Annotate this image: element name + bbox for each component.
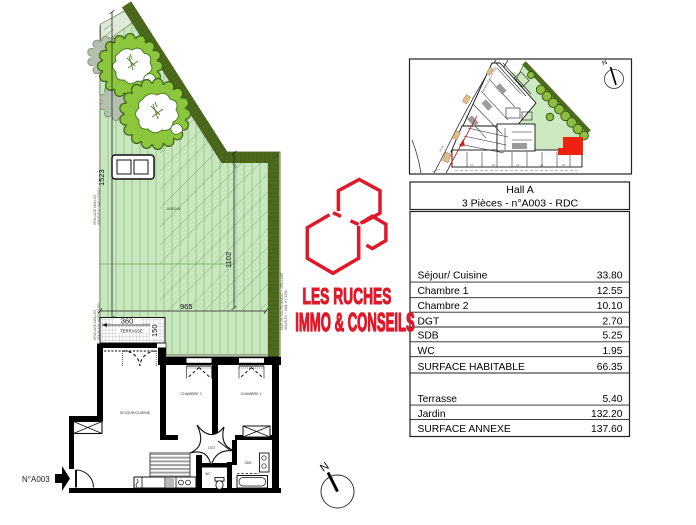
svg-text:WC: WC: [418, 346, 436, 357]
svg-text:Hall A: Hall A: [506, 184, 533, 196]
svg-text:5.40: 5.40: [602, 394, 622, 405]
svg-text:3 Pièces - n°A003 - RDC: 3 Pièces - n°A003 - RDC: [462, 198, 579, 210]
svg-text:A2: A2: [492, 163, 496, 167]
svg-text:Séjour/ Cuisine: Séjour/ Cuisine: [418, 270, 488, 281]
svg-text:CHAMBRE 2: CHAMBRE 2: [181, 392, 202, 396]
svg-text:1102: 1102: [224, 252, 233, 268]
svg-text:TERRASSE: TERRASSE: [120, 329, 143, 334]
svg-text:CHAMBRE 1: CHAMBRE 1: [241, 392, 262, 396]
svg-text:A4: A4: [540, 163, 544, 167]
svg-text:DGT: DGT: [418, 316, 440, 327]
svg-text:137.60: 137.60: [591, 424, 623, 435]
svg-text:66.35: 66.35: [597, 362, 623, 373]
svg-text:1.95: 1.95: [602, 346, 622, 357]
svg-text:10.10: 10.10: [597, 301, 623, 312]
svg-text:Chambre 2: Chambre 2: [418, 301, 469, 312]
svg-text:SDB: SDB: [418, 331, 439, 342]
svg-text:965: 965: [180, 302, 193, 311]
svg-text:LES RUCHES: LES RUCHES: [303, 285, 392, 310]
svg-text:SURFACE ANNEXE: SURFACE ANNEXE: [418, 424, 511, 435]
svg-text:IMMO & CONSEILS: IMMO & CONSEILS: [295, 308, 415, 337]
svg-text:A5: A5: [562, 163, 566, 167]
svg-text:A1: A1: [470, 163, 474, 167]
svg-text:5.25: 5.25: [602, 331, 622, 342]
svg-text:WC: WC: [205, 472, 211, 476]
svg-text:JARDIN: JARDIN: [166, 206, 181, 211]
svg-text:132.20: 132.20: [591, 409, 623, 420]
svg-text:Terrasse: Terrasse: [418, 394, 458, 405]
svg-text:SOUPLES+ HAB HT1500: SOUPLES+ HAB HT1500: [97, 188, 101, 225]
svg-text:1523: 1523: [97, 169, 106, 186]
svg-text:SDB: SDB: [245, 461, 253, 465]
svg-text:Jardin: Jardin: [418, 409, 446, 420]
svg-text:N°A003: N°A003: [22, 475, 50, 484]
svg-text:DGT: DGT: [208, 446, 215, 450]
svg-text:A3: A3: [516, 163, 520, 167]
svg-text:SURFACE HABITABLE: SURFACE HABITABLE: [418, 362, 526, 373]
svg-text:Chambre 1: Chambre 1: [418, 286, 469, 297]
svg-text:SOUPLES + HAB. HT. 1500: SOUPLES + HAB. HT. 1500: [284, 290, 288, 330]
svg-text:360: 360: [121, 317, 134, 326]
svg-text:12.55: 12.55: [597, 286, 623, 297]
svg-text:2.70: 2.70: [602, 316, 622, 327]
svg-text:33.80: 33.80: [597, 270, 623, 281]
svg-text:SEJOUR/CUISINE: SEJOUR/CUISINE: [120, 411, 151, 415]
svg-text:150: 150: [150, 324, 159, 337]
